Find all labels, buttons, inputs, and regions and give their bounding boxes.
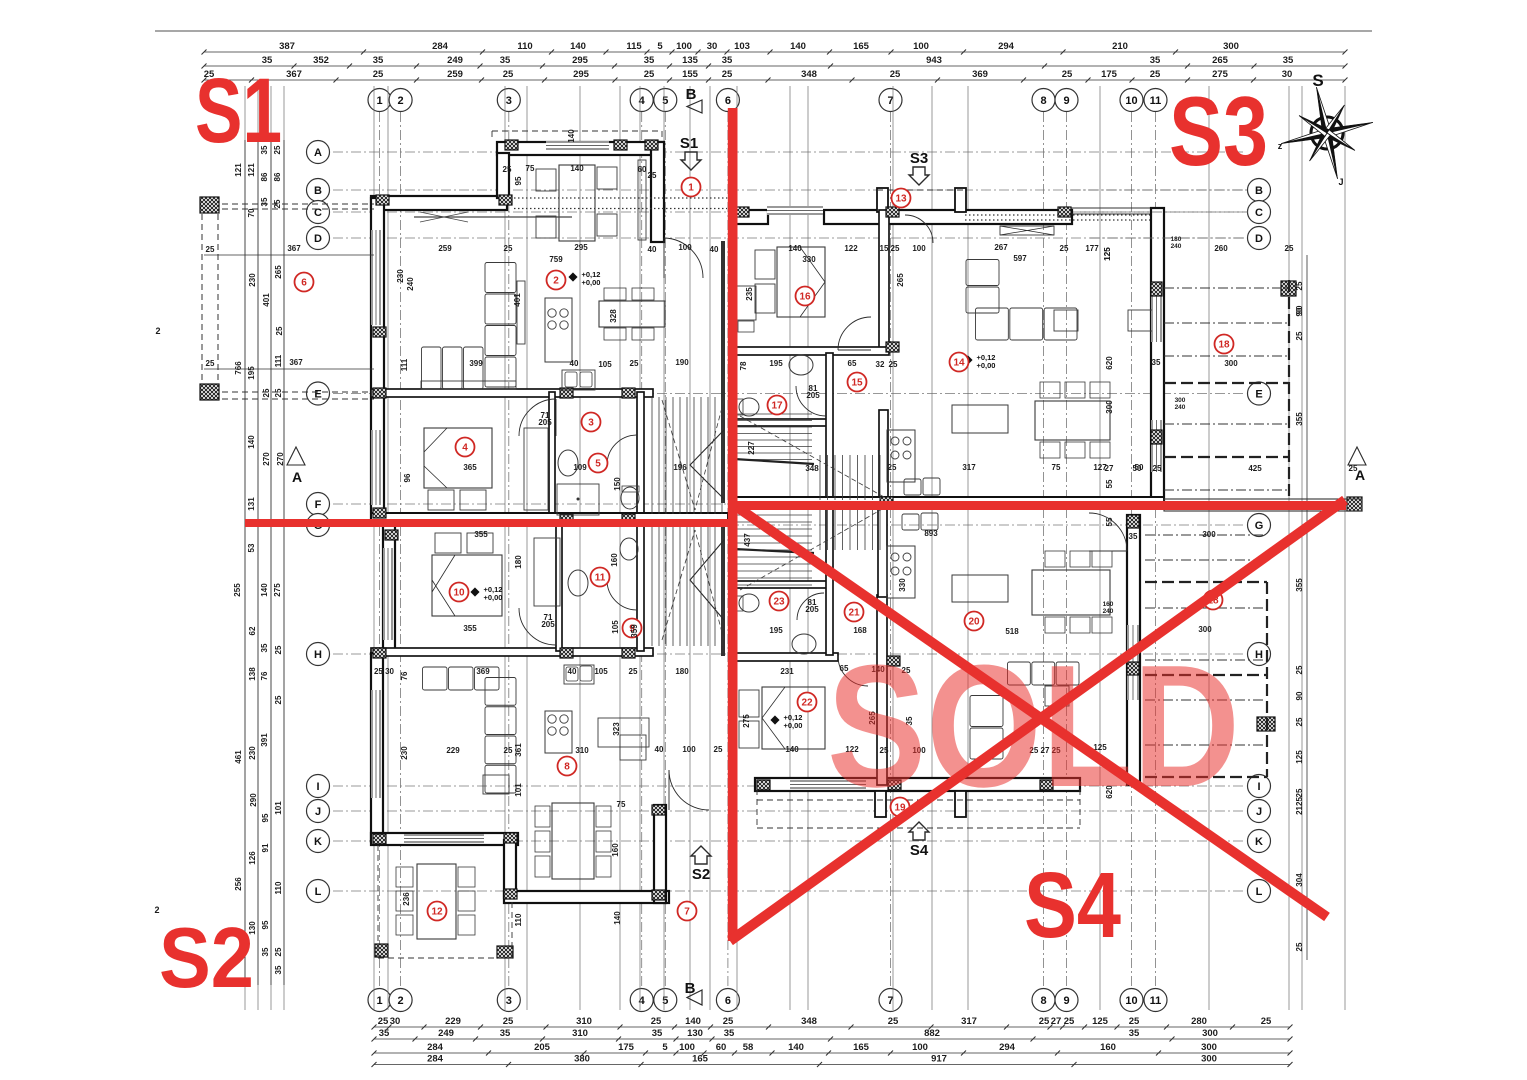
- svg-text:3: 3: [588, 418, 594, 429]
- svg-text:25 30: 25 30: [374, 667, 395, 676]
- svg-text:35: 35: [500, 1028, 511, 1039]
- svg-text:284: 284: [432, 41, 449, 52]
- svg-text:K: K: [1255, 836, 1263, 848]
- svg-text:90: 90: [1295, 691, 1304, 700]
- svg-text:2125: 2125: [1295, 797, 1304, 815]
- svg-text:348: 348: [801, 1016, 817, 1027]
- svg-text:11: 11: [1150, 995, 1162, 1007]
- svg-text:943: 943: [926, 55, 942, 66]
- svg-text:348: 348: [805, 464, 819, 473]
- svg-text:25: 25: [891, 244, 900, 253]
- svg-text:110: 110: [274, 881, 283, 894]
- svg-text:135: 135: [682, 55, 699, 66]
- svg-text:401: 401: [262, 293, 271, 307]
- svg-text:1: 1: [376, 95, 382, 107]
- svg-text:140: 140: [785, 745, 799, 754]
- svg-text:229: 229: [445, 1016, 461, 1027]
- svg-text:12: 12: [431, 907, 443, 918]
- svg-text:50: 50: [1133, 464, 1142, 473]
- svg-text:110: 110: [517, 41, 532, 52]
- svg-text:25: 25: [1060, 244, 1069, 253]
- svg-text:300: 300: [1175, 397, 1186, 404]
- svg-text:35: 35: [652, 1028, 663, 1039]
- svg-text:280: 280: [1191, 1016, 1207, 1027]
- svg-text:40: 40: [568, 667, 577, 676]
- svg-text:+0,00: +0,00: [977, 361, 996, 370]
- svg-text:882: 882: [924, 1028, 940, 1039]
- svg-text:35: 35: [500, 55, 511, 66]
- svg-text:195: 195: [247, 366, 256, 380]
- svg-text:259: 259: [438, 244, 452, 253]
- svg-text:35: 35: [724, 1028, 735, 1039]
- svg-text:295: 295: [572, 55, 589, 66]
- svg-text:25: 25: [1150, 69, 1161, 80]
- svg-text:401: 401: [513, 293, 522, 307]
- svg-text:100: 100: [912, 244, 926, 253]
- svg-text:620: 620: [1105, 356, 1114, 370]
- svg-text:103: 103: [734, 41, 750, 52]
- svg-text:6: 6: [301, 278, 307, 289]
- svg-text:58: 58: [743, 1042, 754, 1053]
- svg-text:260: 260: [1214, 244, 1228, 253]
- svg-text:35: 35: [1152, 358, 1161, 367]
- svg-text:S4: S4: [910, 842, 929, 859]
- svg-text:205: 205: [805, 605, 819, 614]
- svg-text:323: 323: [612, 722, 621, 736]
- svg-text:B: B: [1255, 185, 1263, 197]
- svg-text:265: 265: [896, 273, 905, 287]
- svg-text:95: 95: [261, 920, 270, 929]
- svg-text:231: 231: [780, 667, 794, 676]
- svg-text:35: 35: [379, 1028, 390, 1039]
- svg-text:60: 60: [638, 165, 647, 174]
- svg-text:30: 30: [390, 1016, 401, 1027]
- svg-text:175: 175: [618, 1042, 635, 1053]
- svg-text:25: 25: [1349, 464, 1358, 473]
- svg-text:300: 300: [1223, 41, 1239, 52]
- svg-text:25: 25: [275, 326, 284, 335]
- svg-text:300: 300: [1201, 1054, 1217, 1065]
- svg-text:111: 111: [400, 358, 409, 371]
- svg-text:359: 359: [630, 624, 639, 638]
- svg-text:40: 40: [655, 745, 664, 754]
- svg-text:J: J: [315, 806, 321, 818]
- svg-text:25: 25: [1295, 717, 1304, 726]
- svg-text:369: 369: [972, 69, 988, 80]
- svg-text:40: 40: [570, 359, 579, 368]
- svg-text:304: 304: [1295, 873, 1304, 887]
- svg-text:5: 5: [657, 41, 663, 52]
- svg-text:6: 6: [725, 95, 731, 107]
- svg-text:75: 75: [526, 164, 535, 173]
- svg-text:35: 35: [644, 55, 655, 66]
- svg-text:310: 310: [575, 746, 589, 755]
- svg-text:369: 369: [476, 667, 490, 676]
- svg-text:180: 180: [675, 667, 689, 676]
- svg-text:76: 76: [400, 671, 409, 680]
- svg-text:1: 1: [688, 183, 694, 194]
- svg-text:7: 7: [684, 907, 690, 918]
- svg-text:131: 131: [247, 497, 256, 511]
- svg-text:25: 25: [722, 69, 733, 80]
- svg-text:35: 35: [373, 55, 384, 66]
- svg-text:z: z: [1278, 141, 1283, 151]
- svg-text:27: 27: [1105, 464, 1114, 473]
- svg-text:138: 138: [248, 667, 257, 681]
- svg-text:I: I: [1257, 781, 1260, 793]
- svg-text:205: 205: [541, 620, 555, 629]
- svg-text:140: 140: [570, 41, 586, 52]
- svg-text:H: H: [314, 649, 322, 661]
- svg-text:35: 35: [274, 965, 283, 974]
- svg-text:121: 121: [234, 163, 243, 177]
- svg-text:25: 25: [648, 171, 657, 180]
- svg-text:23: 23: [773, 597, 785, 608]
- svg-text:10: 10: [1125, 95, 1137, 107]
- svg-text:180: 180: [514, 555, 523, 569]
- svg-text:15: 15: [880, 244, 889, 253]
- svg-text:91: 91: [261, 843, 270, 852]
- svg-text:S3: S3: [910, 150, 928, 167]
- svg-text:205: 205: [538, 418, 552, 427]
- svg-text:F: F: [315, 499, 322, 511]
- svg-text:40: 40: [648, 245, 657, 254]
- svg-text:35: 35: [1150, 55, 1161, 66]
- svg-text:96: 96: [403, 473, 412, 482]
- svg-text:25: 25: [1295, 942, 1304, 951]
- svg-text:25: 25: [1285, 244, 1294, 253]
- svg-text:100: 100: [913, 41, 929, 52]
- svg-text:8: 8: [1040, 995, 1046, 1007]
- svg-text:115: 115: [626, 41, 642, 52]
- svg-text:25: 25: [1295, 788, 1304, 797]
- svg-text:25: 25: [373, 69, 384, 80]
- svg-text:125: 125: [1103, 247, 1112, 261]
- svg-text:300: 300: [1202, 1028, 1218, 1039]
- svg-text:348: 348: [801, 69, 817, 80]
- svg-text:22: 22: [801, 698, 813, 709]
- svg-text:101: 101: [514, 783, 523, 797]
- svg-text:D: D: [1255, 233, 1263, 245]
- svg-text:100: 100: [912, 1042, 928, 1053]
- svg-text:76: 76: [260, 671, 269, 680]
- svg-text:290: 290: [249, 793, 258, 807]
- svg-text:240: 240: [1175, 404, 1186, 411]
- svg-text:2: 2: [553, 276, 559, 287]
- svg-text:7: 7: [887, 95, 893, 107]
- svg-text:5: 5: [595, 459, 601, 470]
- svg-text:140: 140: [788, 244, 802, 253]
- svg-text:240: 240: [1103, 608, 1114, 615]
- svg-text:25: 25: [889, 360, 898, 369]
- svg-text:S1: S1: [195, 60, 282, 162]
- svg-text:367: 367: [286, 69, 302, 80]
- svg-text:25: 25: [274, 388, 283, 397]
- svg-text:25: 25: [888, 1016, 899, 1027]
- svg-text:25: 25: [503, 165, 512, 174]
- svg-text:78: 78: [739, 361, 748, 370]
- svg-text:270: 270: [262, 452, 271, 466]
- svg-text:25: 25: [206, 245, 215, 254]
- svg-text:205: 205: [806, 391, 820, 400]
- svg-text:S: S: [1312, 71, 1323, 90]
- svg-text:S4: S4: [1024, 853, 1121, 957]
- svg-text:35: 35: [1129, 532, 1138, 541]
- svg-text:160: 160: [611, 843, 620, 857]
- svg-text:380: 380: [574, 1054, 590, 1065]
- svg-text:25: 25: [274, 947, 283, 956]
- svg-text:14: 14: [953, 358, 965, 369]
- svg-text:140: 140: [613, 911, 622, 925]
- svg-text:267: 267: [994, 243, 1008, 252]
- svg-text:330: 330: [898, 578, 907, 592]
- svg-text:2: 2: [398, 995, 404, 1007]
- svg-text:10: 10: [453, 588, 465, 599]
- svg-text:3: 3: [506, 995, 512, 1007]
- svg-text:100: 100: [678, 243, 692, 252]
- svg-text:25: 25: [1064, 1016, 1075, 1027]
- svg-text:249: 249: [438, 1028, 454, 1039]
- svg-text:105: 105: [594, 667, 608, 676]
- svg-text:25: 25: [504, 244, 513, 253]
- svg-text:195: 195: [769, 359, 783, 368]
- svg-text:35: 35: [260, 643, 269, 652]
- svg-text:190: 190: [675, 358, 689, 367]
- svg-text:284: 284: [427, 1054, 444, 1065]
- svg-text:265: 265: [274, 265, 283, 279]
- svg-text:35: 35: [1283, 55, 1294, 66]
- svg-text:L: L: [1256, 886, 1263, 898]
- svg-text:35: 35: [260, 197, 269, 206]
- svg-text:256: 256: [234, 877, 243, 891]
- svg-text:17: 17: [771, 401, 783, 412]
- svg-text:35: 35: [722, 55, 733, 66]
- svg-text:A: A: [292, 469, 302, 485]
- svg-text:160: 160: [1100, 1042, 1116, 1053]
- svg-text:60: 60: [716, 1042, 727, 1053]
- svg-text:111: 111: [274, 354, 283, 367]
- svg-text:86: 86: [260, 172, 269, 181]
- svg-text:310: 310: [576, 1016, 592, 1027]
- svg-text:355: 355: [463, 624, 477, 633]
- svg-text:11: 11: [1150, 95, 1162, 107]
- svg-text:53: 53: [247, 543, 256, 552]
- svg-text:B: B: [314, 185, 322, 197]
- svg-text:893: 893: [924, 529, 938, 538]
- svg-text:4: 4: [462, 443, 468, 454]
- svg-text:597: 597: [1013, 254, 1027, 263]
- svg-text:E: E: [1255, 389, 1262, 401]
- svg-text:30: 30: [707, 41, 718, 52]
- svg-text:361: 361: [514, 743, 523, 757]
- svg-text:150: 150: [613, 477, 622, 491]
- svg-text:355: 355: [474, 530, 488, 539]
- svg-text:180: 180: [1171, 236, 1182, 243]
- svg-text:35: 35: [1129, 1028, 1140, 1039]
- svg-text:284: 284: [427, 1042, 444, 1053]
- svg-text:235: 235: [745, 287, 754, 301]
- svg-text:328: 328: [609, 309, 618, 323]
- svg-text:275: 275: [273, 583, 282, 597]
- svg-text:165: 165: [692, 1054, 709, 1065]
- svg-text:10: 10: [1125, 995, 1137, 1007]
- svg-text:275: 275: [742, 714, 751, 728]
- svg-text:62: 62: [248, 626, 257, 635]
- svg-text:155: 155: [682, 69, 699, 80]
- svg-text:J: J: [1256, 806, 1262, 818]
- svg-text:25: 25: [1295, 665, 1304, 674]
- svg-text:95: 95: [514, 176, 523, 185]
- svg-text:330: 330: [802, 255, 816, 264]
- svg-text:S2: S2: [159, 911, 254, 1006]
- svg-text:18: 18: [1218, 340, 1230, 351]
- svg-text:259: 259: [447, 69, 463, 80]
- svg-text:25: 25: [1295, 331, 1304, 340]
- svg-text:25: 25: [888, 463, 897, 472]
- svg-text:140: 140: [790, 41, 806, 52]
- svg-text:300: 300: [1224, 359, 1238, 368]
- svg-text:25: 25: [651, 1016, 662, 1027]
- svg-text:300: 300: [1201, 1042, 1217, 1053]
- svg-text:25: 25: [890, 69, 901, 80]
- svg-text:125: 125: [1295, 750, 1304, 764]
- svg-text:11: 11: [595, 573, 606, 584]
- svg-text:229: 229: [446, 746, 460, 755]
- svg-text:101: 101: [274, 801, 283, 815]
- svg-text:5: 5: [662, 995, 668, 1007]
- svg-text:255: 255: [233, 583, 242, 597]
- svg-text:21: 21: [848, 608, 860, 619]
- svg-text:365: 365: [463, 463, 477, 472]
- svg-text:210: 210: [1112, 41, 1128, 52]
- svg-text:25: 25: [503, 69, 514, 80]
- svg-text:J: J: [1338, 177, 1343, 187]
- svg-text:8: 8: [1040, 95, 1046, 107]
- svg-text:30: 30: [1282, 69, 1293, 80]
- svg-text:355: 355: [1295, 578, 1304, 592]
- svg-text:25: 25: [378, 1016, 389, 1027]
- svg-text:236: 236: [402, 892, 411, 906]
- svg-text:+0,00: +0,00: [784, 721, 803, 730]
- svg-text:294: 294: [998, 41, 1015, 52]
- svg-text:917: 917: [931, 1054, 947, 1065]
- svg-text:86: 86: [273, 172, 282, 181]
- svg-text:126: 126: [248, 851, 257, 865]
- svg-text:425: 425: [1248, 464, 1262, 473]
- svg-text:16: 16: [799, 292, 811, 303]
- svg-text:25: 25: [723, 1016, 734, 1027]
- svg-text:240: 240: [1171, 243, 1182, 250]
- svg-text:25: 25: [1039, 1016, 1050, 1027]
- svg-text:25: 25: [630, 359, 639, 368]
- svg-text:125: 125: [1092, 1016, 1109, 1027]
- svg-text:I: I: [316, 781, 319, 793]
- svg-text:+0,00: +0,00: [484, 593, 503, 602]
- svg-text:105: 105: [611, 620, 620, 634]
- svg-text:75: 75: [617, 800, 626, 809]
- svg-text:165: 165: [853, 1042, 870, 1053]
- svg-text:20: 20: [968, 617, 980, 628]
- svg-text:13: 13: [895, 194, 907, 205]
- svg-text:399: 399: [469, 359, 483, 368]
- svg-text:437: 437: [743, 533, 752, 547]
- svg-text:270: 270: [276, 452, 285, 466]
- svg-text:S1: S1: [680, 135, 698, 152]
- svg-text:25: 25: [262, 388, 271, 397]
- svg-text:140: 140: [685, 1016, 701, 1027]
- svg-text:249: 249: [447, 55, 463, 66]
- svg-text:35: 35: [261, 947, 270, 956]
- svg-text:140: 140: [247, 435, 256, 449]
- svg-text:317: 317: [961, 1016, 977, 1027]
- svg-text:5: 5: [662, 1042, 668, 1053]
- svg-text:310: 310: [572, 1028, 588, 1039]
- svg-text:110: 110: [514, 913, 523, 926]
- svg-text:65: 65: [848, 359, 857, 368]
- svg-text:25: 25: [629, 667, 638, 676]
- svg-text:461: 461: [234, 750, 243, 764]
- svg-text:387: 387: [279, 41, 295, 52]
- svg-text:25: 25: [206, 359, 215, 368]
- svg-text:H: H: [1255, 649, 1263, 661]
- svg-text:140: 140: [260, 583, 269, 597]
- svg-text:L: L: [315, 886, 322, 898]
- svg-text:240: 240: [406, 277, 415, 291]
- svg-text:230: 230: [400, 746, 409, 760]
- svg-text:355: 355: [1295, 412, 1304, 426]
- svg-text:25: 25: [1153, 464, 1162, 473]
- svg-text:300: 300: [1202, 530, 1216, 539]
- svg-text:265: 265: [1212, 55, 1229, 66]
- svg-text:230: 230: [396, 269, 405, 283]
- svg-text:25: 25: [1062, 69, 1073, 80]
- svg-text:5: 5: [662, 95, 668, 107]
- svg-text:165: 165: [853, 41, 870, 52]
- svg-text:367: 367: [289, 358, 303, 367]
- svg-text:8: 8: [564, 762, 570, 773]
- svg-text:25: 25: [504, 746, 513, 755]
- svg-text:2: 2: [155, 326, 160, 336]
- svg-text:90: 90: [1295, 305, 1304, 314]
- svg-text:140: 140: [788, 1042, 804, 1053]
- svg-text:122: 122: [844, 244, 858, 253]
- svg-text:+0,00: +0,00: [582, 278, 601, 287]
- svg-text:B: B: [686, 86, 697, 103]
- svg-text:25: 25: [1261, 1016, 1272, 1027]
- svg-text:55: 55: [1105, 479, 1114, 488]
- svg-text:175: 175: [1101, 69, 1118, 80]
- svg-text:3: 3: [506, 95, 512, 107]
- svg-text:759: 759: [549, 255, 563, 264]
- svg-text:25: 25: [644, 69, 655, 80]
- svg-text:160: 160: [1103, 601, 1114, 608]
- svg-text:2: 2: [398, 95, 404, 107]
- svg-text:130: 130: [687, 1028, 703, 1039]
- svg-text:95: 95: [261, 813, 270, 822]
- svg-text:7: 7: [887, 995, 893, 1007]
- svg-text:196: 196: [673, 463, 687, 472]
- svg-text:230: 230: [248, 273, 257, 287]
- svg-text:140: 140: [570, 164, 584, 173]
- svg-text:100: 100: [676, 41, 692, 52]
- svg-text:25: 25: [1129, 1016, 1140, 1027]
- svg-text:100: 100: [682, 745, 696, 754]
- svg-text:109: 109: [573, 463, 587, 472]
- svg-text:195: 195: [769, 626, 783, 635]
- svg-text:295: 295: [574, 243, 588, 252]
- svg-text:205: 205: [534, 1042, 551, 1053]
- svg-text:D: D: [314, 233, 322, 245]
